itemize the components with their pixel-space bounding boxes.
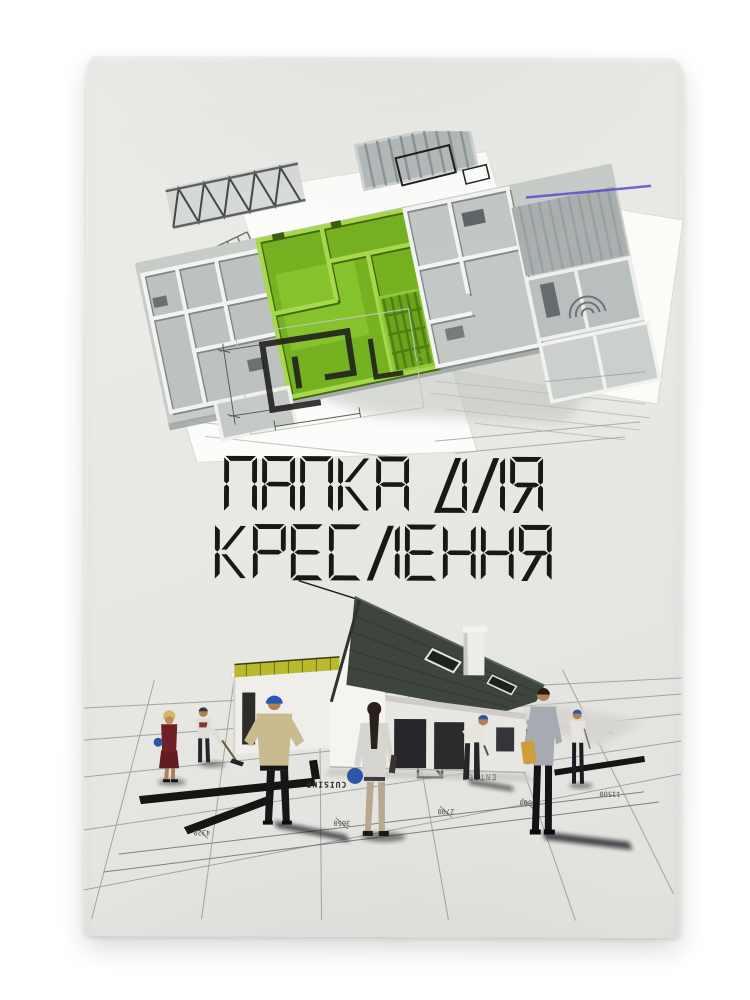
house-collage: CUISINE ENTREE 4320 3650 2700 5600 11500 [84, 572, 682, 921]
chimney [462, 626, 487, 675]
folder-cover: CUISINE ENTREE 4320 3650 2700 5600 11500 [83, 56, 683, 938]
figure-woman-red [153, 710, 186, 786]
dim-5: 11500 [599, 790, 620, 798]
dimension-numbers: 4320 3650 2700 5600 11500 [193, 788, 620, 837]
blue-bag [154, 738, 163, 747]
dim-2: 3650 [333, 819, 350, 827]
label-cuisine: CUISINE [306, 780, 347, 789]
dim-3: 2700 [437, 807, 454, 815]
floorplan-collage [85, 130, 683, 464]
held-hardhat [347, 768, 363, 784]
title-line-1 [224, 455, 543, 513]
antenna-line [299, 581, 360, 600]
title-block [85, 455, 682, 582]
product-photo: CUISINE ENTREE 4320 3650 2700 5600 11500 [0, 0, 750, 1000]
dim-1: 4320 [193, 828, 210, 836]
